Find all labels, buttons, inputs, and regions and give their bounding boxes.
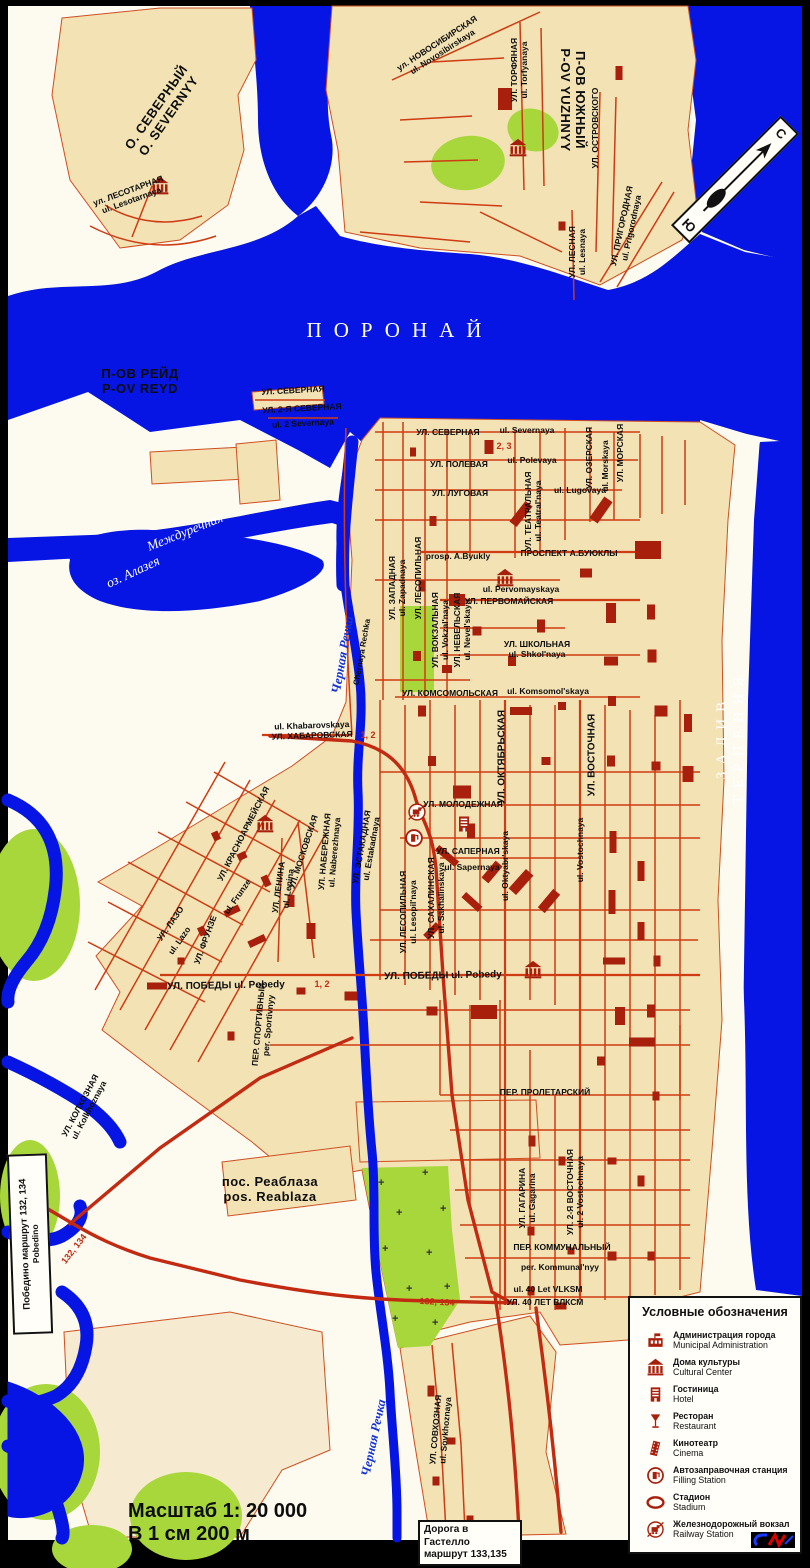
building [580, 569, 592, 578]
culture-icon [646, 1358, 665, 1377]
hotel-icon [459, 817, 469, 832]
svg-text:+: + [392, 1313, 398, 1325]
building [529, 1136, 536, 1147]
building [228, 1032, 235, 1041]
cinema-icon [646, 1439, 665, 1458]
building [528, 1287, 535, 1296]
building [616, 66, 623, 80]
railway-icon [646, 1520, 665, 1539]
legend-item-restaurant: Ресторан Restaurant [630, 1408, 800, 1435]
legend-item-stadium: Стадион Stadium [630, 1489, 800, 1516]
building [433, 1477, 440, 1486]
railway-icon [409, 804, 426, 820]
building [428, 756, 436, 766]
fuel-icon [646, 1466, 665, 1485]
legend-label-en: Municipal Administration [673, 1341, 775, 1351]
svg-text:+: + [440, 1203, 446, 1215]
restaurant-icon [646, 1412, 665, 1431]
building [442, 665, 452, 673]
legend-title: Условные обозначения [634, 1305, 796, 1319]
building [537, 620, 545, 633]
svg-text:+: + [422, 1167, 428, 1179]
compass-south-label: Ю [679, 215, 699, 235]
building [647, 605, 655, 620]
building [559, 1157, 566, 1166]
gastello-line-1: Дорога в Гастелло [424, 1524, 516, 1549]
building [607, 756, 615, 767]
building [558, 702, 566, 710]
building [559, 222, 566, 231]
building [508, 656, 516, 666]
gastello-line-2: маршрут 133,135 [424, 1549, 516, 1562]
building [608, 696, 616, 706]
legend-items: Администрация города Municipal Administr… [630, 1327, 800, 1543]
map-legend: Условные обозначения Администрация город… [628, 1296, 802, 1554]
building [653, 1092, 660, 1101]
svg-text:+: + [406, 1283, 412, 1295]
building [413, 651, 421, 661]
building [629, 1038, 655, 1047]
building [568, 1248, 575, 1255]
building [430, 516, 437, 526]
svg-text:+: + [432, 1317, 438, 1329]
legend-item-fuel: Автозаправочная станция Filling Station [630, 1462, 800, 1489]
gastello-route-box: Дорога в Гастелло маршрут 133,135 [418, 1520, 522, 1566]
building [307, 923, 316, 939]
building [485, 440, 494, 454]
building [604, 657, 618, 666]
building [603, 958, 625, 965]
building [419, 581, 426, 592]
svg-text:+: + [378, 1177, 384, 1189]
building [652, 762, 661, 771]
building [597, 1057, 605, 1066]
building [638, 861, 645, 881]
building [528, 1227, 535, 1236]
svg-text:+: + [396, 1207, 402, 1219]
legend-item-culture: Дома культуры Cultural Center [630, 1354, 800, 1381]
city-map-poronaysk: ++++++++++ О. СЕВЕРНЫЙ O. SEVERNYYП-ОВ Ю… [0, 0, 810, 1568]
scale-line-2: В 1 см 200 м [128, 1523, 307, 1546]
map-scale: Масштаб 1: 20 000 В 1 см 200 м [128, 1500, 307, 1546]
building [453, 786, 471, 799]
building [608, 1252, 617, 1261]
building [608, 1158, 617, 1165]
building [683, 766, 694, 782]
legend-label-en: Stadium [673, 1503, 710, 1513]
building [684, 714, 692, 732]
svg-text:+: + [444, 1281, 450, 1293]
building [297, 988, 306, 995]
hotel-icon [646, 1385, 665, 1404]
stadium-icon [646, 1493, 665, 1512]
building [615, 1007, 625, 1025]
legend-label-en: Cultural Center [673, 1368, 740, 1378]
building [410, 448, 416, 457]
svg-text:+: + [382, 1243, 388, 1255]
legend-label-en: Filling Station [673, 1476, 788, 1486]
building [610, 831, 617, 853]
legend-label-en: Cinema [673, 1449, 718, 1459]
building [427, 1007, 438, 1016]
admin-icon [646, 1331, 665, 1350]
building [498, 88, 512, 110]
building [447, 1438, 456, 1445]
building [635, 541, 661, 559]
building [606, 603, 616, 623]
legend-label-en: Restaurant [673, 1422, 716, 1432]
building [655, 706, 668, 717]
building [556, 1303, 567, 1310]
legend-item-cinema: Кинотеатр Cinema [630, 1435, 800, 1462]
building [449, 594, 465, 606]
pobedino-route-box: Победино маршрут 132, 134 Pobedino [7, 1153, 53, 1334]
building [609, 890, 616, 914]
building [654, 956, 661, 967]
building [638, 922, 645, 940]
legend-item-hotel: Гостиница Hotel [630, 1381, 800, 1408]
svg-text:+: + [426, 1247, 432, 1259]
building [473, 627, 482, 636]
building [648, 650, 657, 663]
building [647, 1005, 655, 1018]
scale-line-1: Масштаб 1: 20 000 [128, 1500, 307, 1523]
building [428, 1386, 435, 1397]
legend-label-en: Hotel [673, 1395, 719, 1405]
building [638, 1176, 645, 1187]
building [345, 992, 358, 1001]
building [288, 895, 295, 907]
legend-item-admin: Администрация города Municipal Administr… [630, 1327, 800, 1354]
building [418, 706, 426, 717]
fuel-icon [406, 830, 422, 846]
building [510, 707, 532, 715]
publisher-logo [751, 1532, 795, 1548]
building [178, 958, 185, 965]
building [648, 1252, 655, 1261]
compass-north-label: С [772, 125, 789, 142]
building [471, 1005, 497, 1019]
building [542, 757, 551, 765]
building [147, 983, 167, 990]
